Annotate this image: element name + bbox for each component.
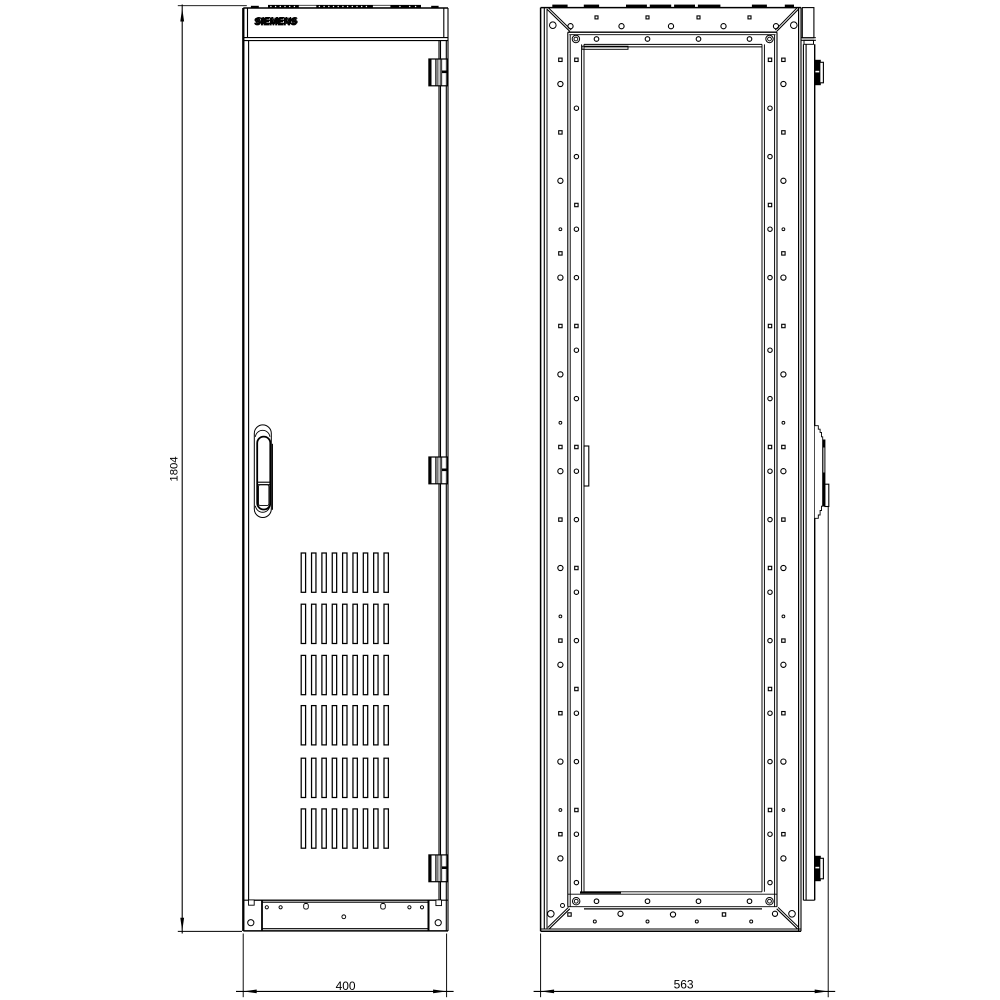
- svg-text:1804: 1804: [169, 456, 181, 481]
- svg-text:SIEMENS: SIEMENS: [256, 16, 299, 27]
- svg-text:563: 563: [674, 977, 694, 991]
- svg-text:400: 400: [336, 979, 356, 993]
